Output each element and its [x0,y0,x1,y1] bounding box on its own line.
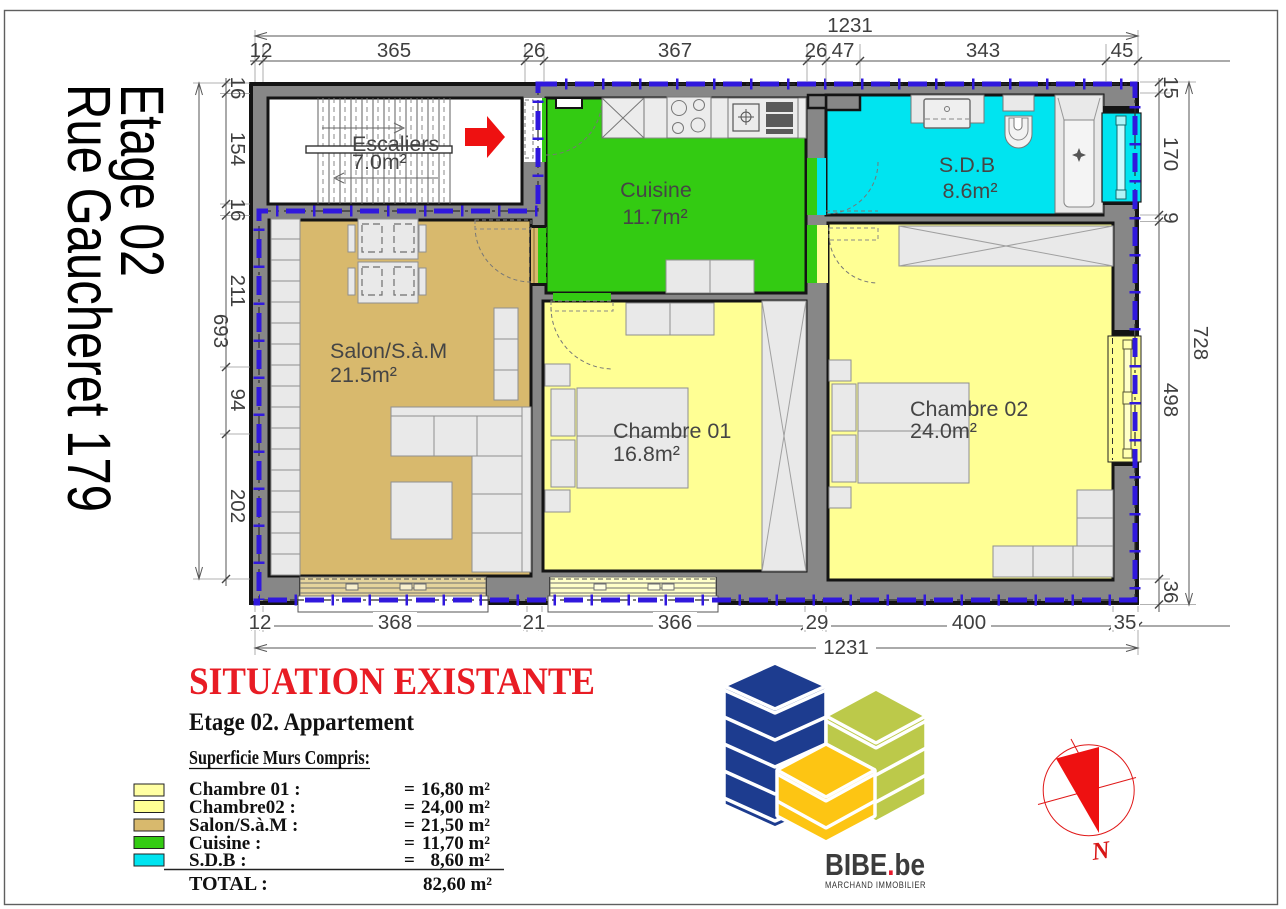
svg-text:Chambre 02: Chambre 02 [910,397,1028,421]
svg-text:S.D.B :: S.D.B : [189,850,247,871]
svg-text:170: 170 [1159,137,1182,171]
svg-text:1231: 1231 [827,14,873,37]
svg-text:365: 365 [377,39,411,62]
svg-text:Rue Gaucheret 179: Rue Gaucheret 179 [55,84,123,512]
svg-text:26: 26 [523,39,546,62]
svg-text:BIBE.be: BIBE.be [825,847,925,882]
svg-text:498: 498 [1159,383,1182,417]
svg-text:154: 154 [226,132,249,166]
svg-text:7.0m²: 7.0m² [352,150,407,174]
svg-text:15: 15 [1159,76,1182,99]
svg-text:8,60 m²: 8,60 m² [430,850,490,871]
svg-text:94: 94 [226,389,249,412]
svg-text:400: 400 [952,611,986,634]
svg-text:Salon/S.à.M: Salon/S.à.M [330,339,447,363]
svg-text:26: 26 [805,39,828,62]
svg-text:MARCHAND IMMOBILIER: MARCHAND IMMOBILIER [825,880,926,891]
svg-text:Superficie Murs Compris:: Superficie Murs Compris: [189,747,370,769]
svg-text:8.6m²: 8.6m² [943,179,998,203]
svg-text:343: 343 [966,39,1000,62]
svg-text:728: 728 [1189,326,1212,360]
svg-text:693: 693 [209,314,232,348]
svg-text:21.5m²: 21.5m² [330,363,397,387]
svg-text:S.D.B: S.D.B [939,153,995,177]
svg-text:1231: 1231 [823,636,869,659]
svg-text:N: N [1089,837,1113,867]
svg-text:12: 12 [250,39,273,62]
svg-text:82,60 m²: 82,60 m² [423,874,492,895]
svg-text:=: = [404,850,415,871]
svg-text:12: 12 [249,611,272,634]
svg-text:16.8m²: 16.8m² [613,442,680,466]
svg-text:21: 21 [523,611,546,634]
svg-text:Cuisine: Cuisine [620,178,692,202]
svg-text:16: 16 [226,199,249,222]
svg-text:367: 367 [658,39,692,62]
svg-text:45: 45 [1111,39,1134,62]
svg-text:35: 35 [1114,611,1137,634]
svg-text:24.0m²: 24.0m² [910,419,977,443]
svg-text:211: 211 [226,275,249,308]
svg-text:SITUATION EXISTANTE: SITUATION EXISTANTE [189,660,595,703]
svg-text:202: 202 [226,489,249,523]
svg-text:366: 366 [658,611,692,634]
svg-text:9: 9 [1159,212,1182,223]
svg-text:368: 368 [378,611,412,634]
svg-text:29: 29 [806,611,829,634]
svg-text:47: 47 [832,39,855,62]
svg-text:36: 36 [1159,581,1182,604]
svg-text:Chambre 01: Chambre 01 [613,419,731,443]
svg-text:11.7m²: 11.7m² [622,205,687,229]
svg-text:Etage 02. Appartement: Etage 02. Appartement [189,709,415,736]
svg-text:16: 16 [226,77,249,100]
svg-text:TOTAL :: TOTAL : [189,873,268,895]
